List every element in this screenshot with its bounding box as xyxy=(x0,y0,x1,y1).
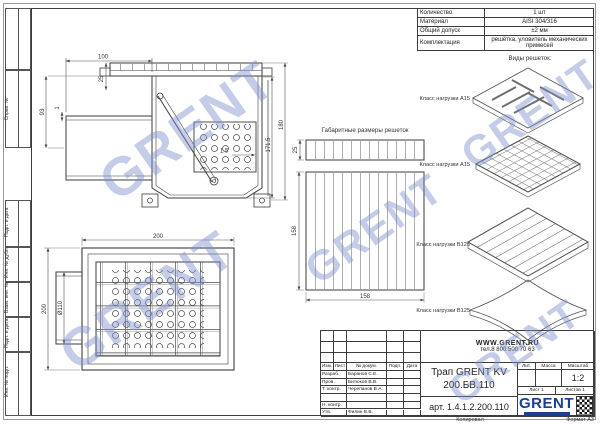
document-title-cell: Трап GRENT KV 200.БВ.110 xyxy=(421,363,518,397)
dim-grate-158-bottom: 158 xyxy=(360,294,371,300)
copied-label: Копировал xyxy=(400,417,540,423)
grate-label-a15-1: Класс нагрузки А15 xyxy=(419,96,470,102)
spec-row: Комплектация решётка, уловитель механиче… xyxy=(418,35,594,50)
format-label: Формат А3 xyxy=(540,417,594,423)
tb-role: Т. контр. xyxy=(321,386,347,394)
grate-icon-b125-bars xyxy=(468,208,588,282)
grate-types-title: Виды решеток: xyxy=(508,55,551,62)
tb-role: Н. контр. xyxy=(321,402,347,410)
mass-label: Масса xyxy=(536,363,562,370)
tb-role: Пров. xyxy=(321,379,347,387)
tb-name xyxy=(347,394,387,402)
grate-icon-a15-slotted xyxy=(473,68,583,133)
spec-table: Количество 1 шт Материал AISI 304/316 Об… xyxy=(417,8,594,51)
spec-label: Общий допуск xyxy=(418,27,485,35)
tb-role: Утв. xyxy=(321,410,347,418)
dim-171-5: 171.5 xyxy=(266,137,272,153)
tb-col-dokum: № докум. xyxy=(347,363,387,371)
spec-label: Количество xyxy=(418,9,485,17)
dim-25: 25 xyxy=(99,75,105,82)
spec-value: AISI 304/316 xyxy=(485,18,594,26)
document-title-line1: Трап GRENT KV xyxy=(431,367,507,380)
tb-name xyxy=(347,402,387,410)
spec-value: ±2 мм xyxy=(485,27,594,35)
tb-name: Черепанов В.А. xyxy=(347,386,387,394)
spec-value: решётка, уловитель механических примесей xyxy=(485,36,594,50)
tb-name: Баранов С.Е. xyxy=(347,371,387,379)
tb-role: Разраб. xyxy=(321,371,347,379)
grate-label-b125-1: Класс нагрузки В125 xyxy=(416,242,470,248)
grate-dims-title: Габаритные размеры решеток xyxy=(322,127,409,134)
grate-label-b125-2: Класс нагрузки В125 xyxy=(416,308,470,314)
spec-row: Материал AISI 304/316 xyxy=(418,17,594,26)
tb-name: Филин В.В. xyxy=(347,410,387,418)
dim-100: 100 xyxy=(98,55,109,61)
grate-icon-a15-mesh xyxy=(476,136,580,197)
scale-label: Масштаб xyxy=(562,363,595,370)
dim-plan-200-left: 200 xyxy=(42,303,48,314)
tb-role xyxy=(321,394,347,402)
logo-cell: GRENT xyxy=(518,395,595,417)
dim-pipe-diameter: Ø110 xyxy=(58,300,64,315)
logo-tagline-bar xyxy=(524,412,570,416)
spec-row: Общий допуск ±2 мм xyxy=(418,26,594,35)
dim-1-5: 1.5 xyxy=(220,149,229,155)
grate-label-a15-2: Класс нагрузки А15 xyxy=(419,162,470,168)
document-title-line2: 200.БВ.110 xyxy=(443,380,494,393)
dim-grate-158-left: 158 xyxy=(292,225,298,236)
company-contact-cell: WWW.GRENT.RU тел.8 800 500 70 63 xyxy=(421,331,595,363)
dim-93: 93 xyxy=(40,108,46,115)
tb-col-list: Лист xyxy=(334,363,347,371)
company-website: WWW.GRENT.RU xyxy=(476,340,539,347)
spec-value: 1 шт xyxy=(485,9,594,17)
dim-grate-25: 25 xyxy=(293,146,299,153)
lit-label: Лит. xyxy=(518,363,536,370)
qr-code xyxy=(576,396,593,416)
tb-col-izm: Изм. xyxy=(321,363,334,371)
sheets-total: Листов 1 xyxy=(556,387,595,395)
spec-label: Материал xyxy=(418,18,485,26)
tb-col-podp: Подп. xyxy=(387,363,404,371)
spec-label: Комплектация xyxy=(418,36,485,50)
dim-plan-200-top: 200 xyxy=(153,234,164,240)
spec-row: Количество 1 шт xyxy=(418,8,594,17)
side-section-view xyxy=(66,63,272,207)
sheet-number: Лист 1 xyxy=(518,387,556,395)
dim-1: 1 xyxy=(55,106,61,110)
plan-view xyxy=(56,248,234,370)
company-phone: тел.8 800 500 70 63 xyxy=(480,347,534,353)
grate-profile-view xyxy=(306,140,424,290)
scale-value: 1:2 xyxy=(562,370,595,387)
tb-col-data: Дата xyxy=(404,363,421,371)
grent-logo: GRENT xyxy=(519,396,574,411)
dim-180: 180 xyxy=(279,119,285,130)
article-number: арт. 1.4.1.2.200.110 xyxy=(421,397,518,417)
tb-name: Битюков В.В. xyxy=(347,379,387,387)
title-block: WWW.GRENT.RU тел.8 800 500 70 63 Изм. Ли… xyxy=(320,330,594,416)
